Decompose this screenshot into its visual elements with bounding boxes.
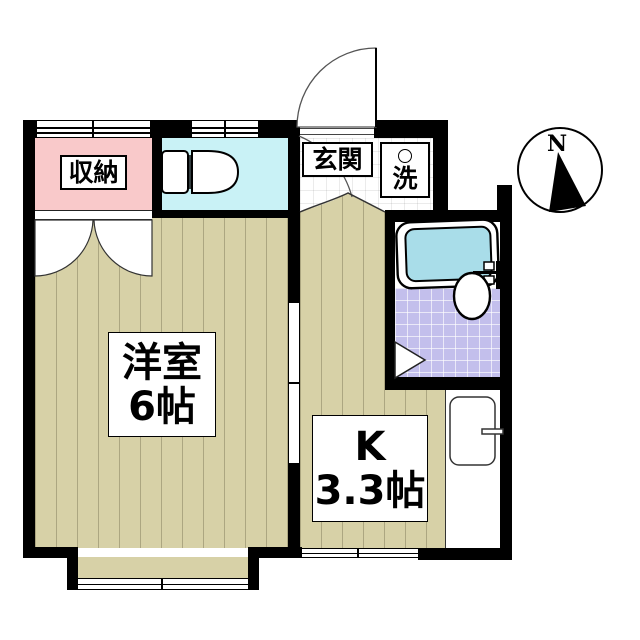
wall-segment xyxy=(418,548,512,560)
window-line xyxy=(78,584,248,586)
window-tick xyxy=(288,382,300,384)
wall-segment xyxy=(248,547,259,590)
laundry-box: 洗 xyxy=(380,142,430,198)
window-tick xyxy=(161,578,163,590)
kitchen-size: 3.3帖 xyxy=(315,469,426,513)
bay-window xyxy=(78,578,248,590)
wall-segment xyxy=(288,218,300,303)
window-tick xyxy=(92,120,94,138)
entrance-label-box: 玄関 xyxy=(302,142,373,177)
bath-tile-floor xyxy=(395,288,500,378)
wall-segment xyxy=(257,547,302,558)
western-room-label: 洋室 xyxy=(122,341,202,385)
floor-plan: N 収納 玄関 洗 洋室 6帖 K 3.3帖 xyxy=(0,0,640,640)
compass-north-label: N xyxy=(547,131,567,157)
north-window-toilet xyxy=(192,120,258,138)
wall-segment xyxy=(152,136,162,210)
wall-segment xyxy=(433,120,448,213)
kitchen-label-box: K 3.3帖 xyxy=(312,415,428,522)
kitchen-label: K xyxy=(355,425,386,469)
north-window-storage xyxy=(37,120,150,138)
kitchen-south-window xyxy=(302,548,418,558)
wall-segment xyxy=(288,136,300,210)
wall-segment xyxy=(385,377,500,390)
bay-window-floor xyxy=(78,557,248,578)
western-room-size: 6帖 xyxy=(128,385,196,429)
window-line xyxy=(37,127,150,129)
laundry-label: 洗 xyxy=(392,165,417,193)
entrance-door-opening xyxy=(300,120,374,138)
wall-segment xyxy=(67,547,78,590)
room-kitchen-sliding-door xyxy=(288,303,300,463)
wall-segment xyxy=(23,547,72,558)
window-tick xyxy=(357,548,359,558)
entrance-label: 玄関 xyxy=(312,146,362,174)
washing-machine-icon xyxy=(398,149,412,163)
threshold-line xyxy=(300,134,374,135)
closet-threshold xyxy=(35,210,152,220)
entrance-door-swing xyxy=(297,48,376,127)
north-compass-icon: N xyxy=(518,128,602,212)
wall-segment xyxy=(152,210,300,218)
bath-upper-floor xyxy=(395,222,500,288)
storage-label-box: 収納 xyxy=(60,155,127,190)
wall-segment xyxy=(23,120,35,558)
wall-segment xyxy=(385,210,512,222)
wall-segment xyxy=(23,120,37,138)
wall-segment xyxy=(500,210,512,560)
window-line xyxy=(37,132,150,134)
wall-segment xyxy=(385,210,395,390)
threshold-line xyxy=(300,128,374,129)
wall-segment xyxy=(288,463,300,548)
storage-label: 収納 xyxy=(68,159,118,187)
window-line xyxy=(302,553,418,555)
western-room-label-box: 洋室 6帖 xyxy=(108,332,216,437)
wall-segment xyxy=(497,185,512,210)
toilet-floor xyxy=(162,138,288,210)
window-tick xyxy=(224,120,226,138)
kitchen-counter xyxy=(445,390,500,548)
